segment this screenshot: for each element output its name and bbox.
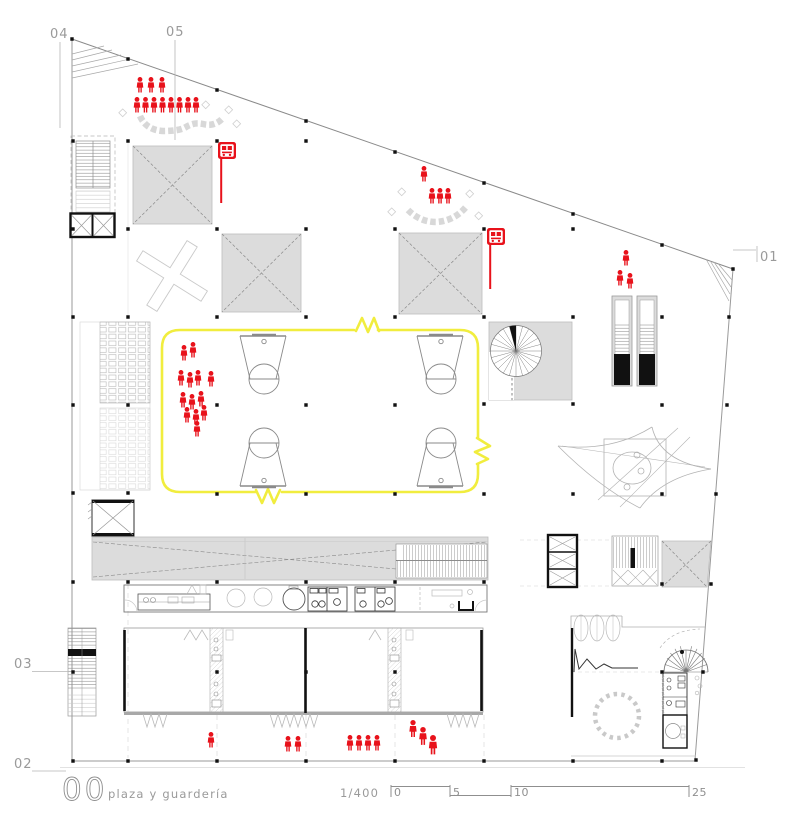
elevator-east	[548, 535, 577, 587]
round-table	[254, 588, 272, 606]
key-bottom-right	[417, 428, 463, 488]
grandstand	[80, 322, 150, 490]
escalators	[612, 296, 657, 386]
nursery-rooms	[663, 673, 687, 748]
x-sculpture	[120, 224, 225, 329]
round-table	[227, 589, 245, 607]
chair-circle	[595, 694, 639, 738]
scale-tick-0: 0	[394, 786, 402, 799]
nursery-block	[571, 615, 708, 756]
grandstand-lower	[100, 408, 150, 490]
accordion-doors	[143, 714, 479, 727]
elevator-ramp-west	[88, 500, 134, 536]
basketball-keys	[240, 335, 463, 488]
classrooms-strip	[123, 628, 483, 727]
people-group-south	[208, 720, 437, 754]
key-bottom-left	[240, 428, 286, 488]
scale-tick-5: 5	[453, 786, 461, 799]
zigzag-bottom	[256, 489, 280, 503]
big-table	[283, 588, 305, 610]
grid-label-01: 01	[760, 250, 779, 265]
kitchen-strip	[124, 585, 487, 612]
bus-stop-icon	[487, 228, 505, 289]
key-top-right	[417, 335, 463, 395]
elevator-northwest	[71, 214, 115, 238]
bathroom-2	[355, 587, 395, 611]
grid-label-05: 05	[166, 25, 185, 40]
scale-tick-25: 25	[692, 786, 707, 799]
service-core-1	[210, 628, 223, 712]
scale-ratio: 1/400	[340, 786, 379, 800]
floor-plan-canvas: 04 05 01 03 02 00 plaza y guardería 1/40…	[0, 0, 800, 818]
floor-plan-sheet: 04 05 01 03 02 00 plaza y guardería 1/40…	[0, 0, 800, 818]
grandstand-upper	[100, 322, 150, 403]
people-group-center-north	[421, 166, 452, 204]
scale-tick-10: 10	[514, 786, 529, 799]
counter-u	[459, 601, 473, 610]
bathroom-1	[308, 587, 347, 611]
court-boundary	[162, 318, 490, 503]
chair-arc-north	[140, 116, 222, 131]
service-core-2	[388, 628, 401, 712]
stair-east	[612, 536, 658, 586]
entry-door-lenses	[574, 615, 620, 641]
tensile-canopy	[558, 427, 711, 508]
fan-stair	[660, 629, 708, 672]
people-group-east	[617, 250, 634, 289]
zigzag-top	[356, 318, 379, 332]
chair-arc-mid	[408, 207, 466, 222]
people-group-north	[134, 77, 200, 113]
office-zone	[420, 587, 473, 611]
play-wall-zigzag	[574, 649, 638, 672]
level-number: 00	[62, 772, 107, 808]
zigzag-right	[475, 438, 490, 464]
scale-bar: 0 5 10 25	[391, 785, 707, 799]
people-group-court	[178, 342, 215, 437]
grid-label-04: 04	[50, 27, 69, 42]
key-top-left	[240, 335, 286, 395]
title-block: 00 plaza y guardería 1/400	[62, 772, 379, 808]
grid-label-02: 02	[14, 757, 33, 772]
level-title: plaza y guardería	[108, 787, 229, 801]
bus-stop-icon	[218, 142, 236, 203]
grid-label-03: 03	[14, 657, 33, 672]
